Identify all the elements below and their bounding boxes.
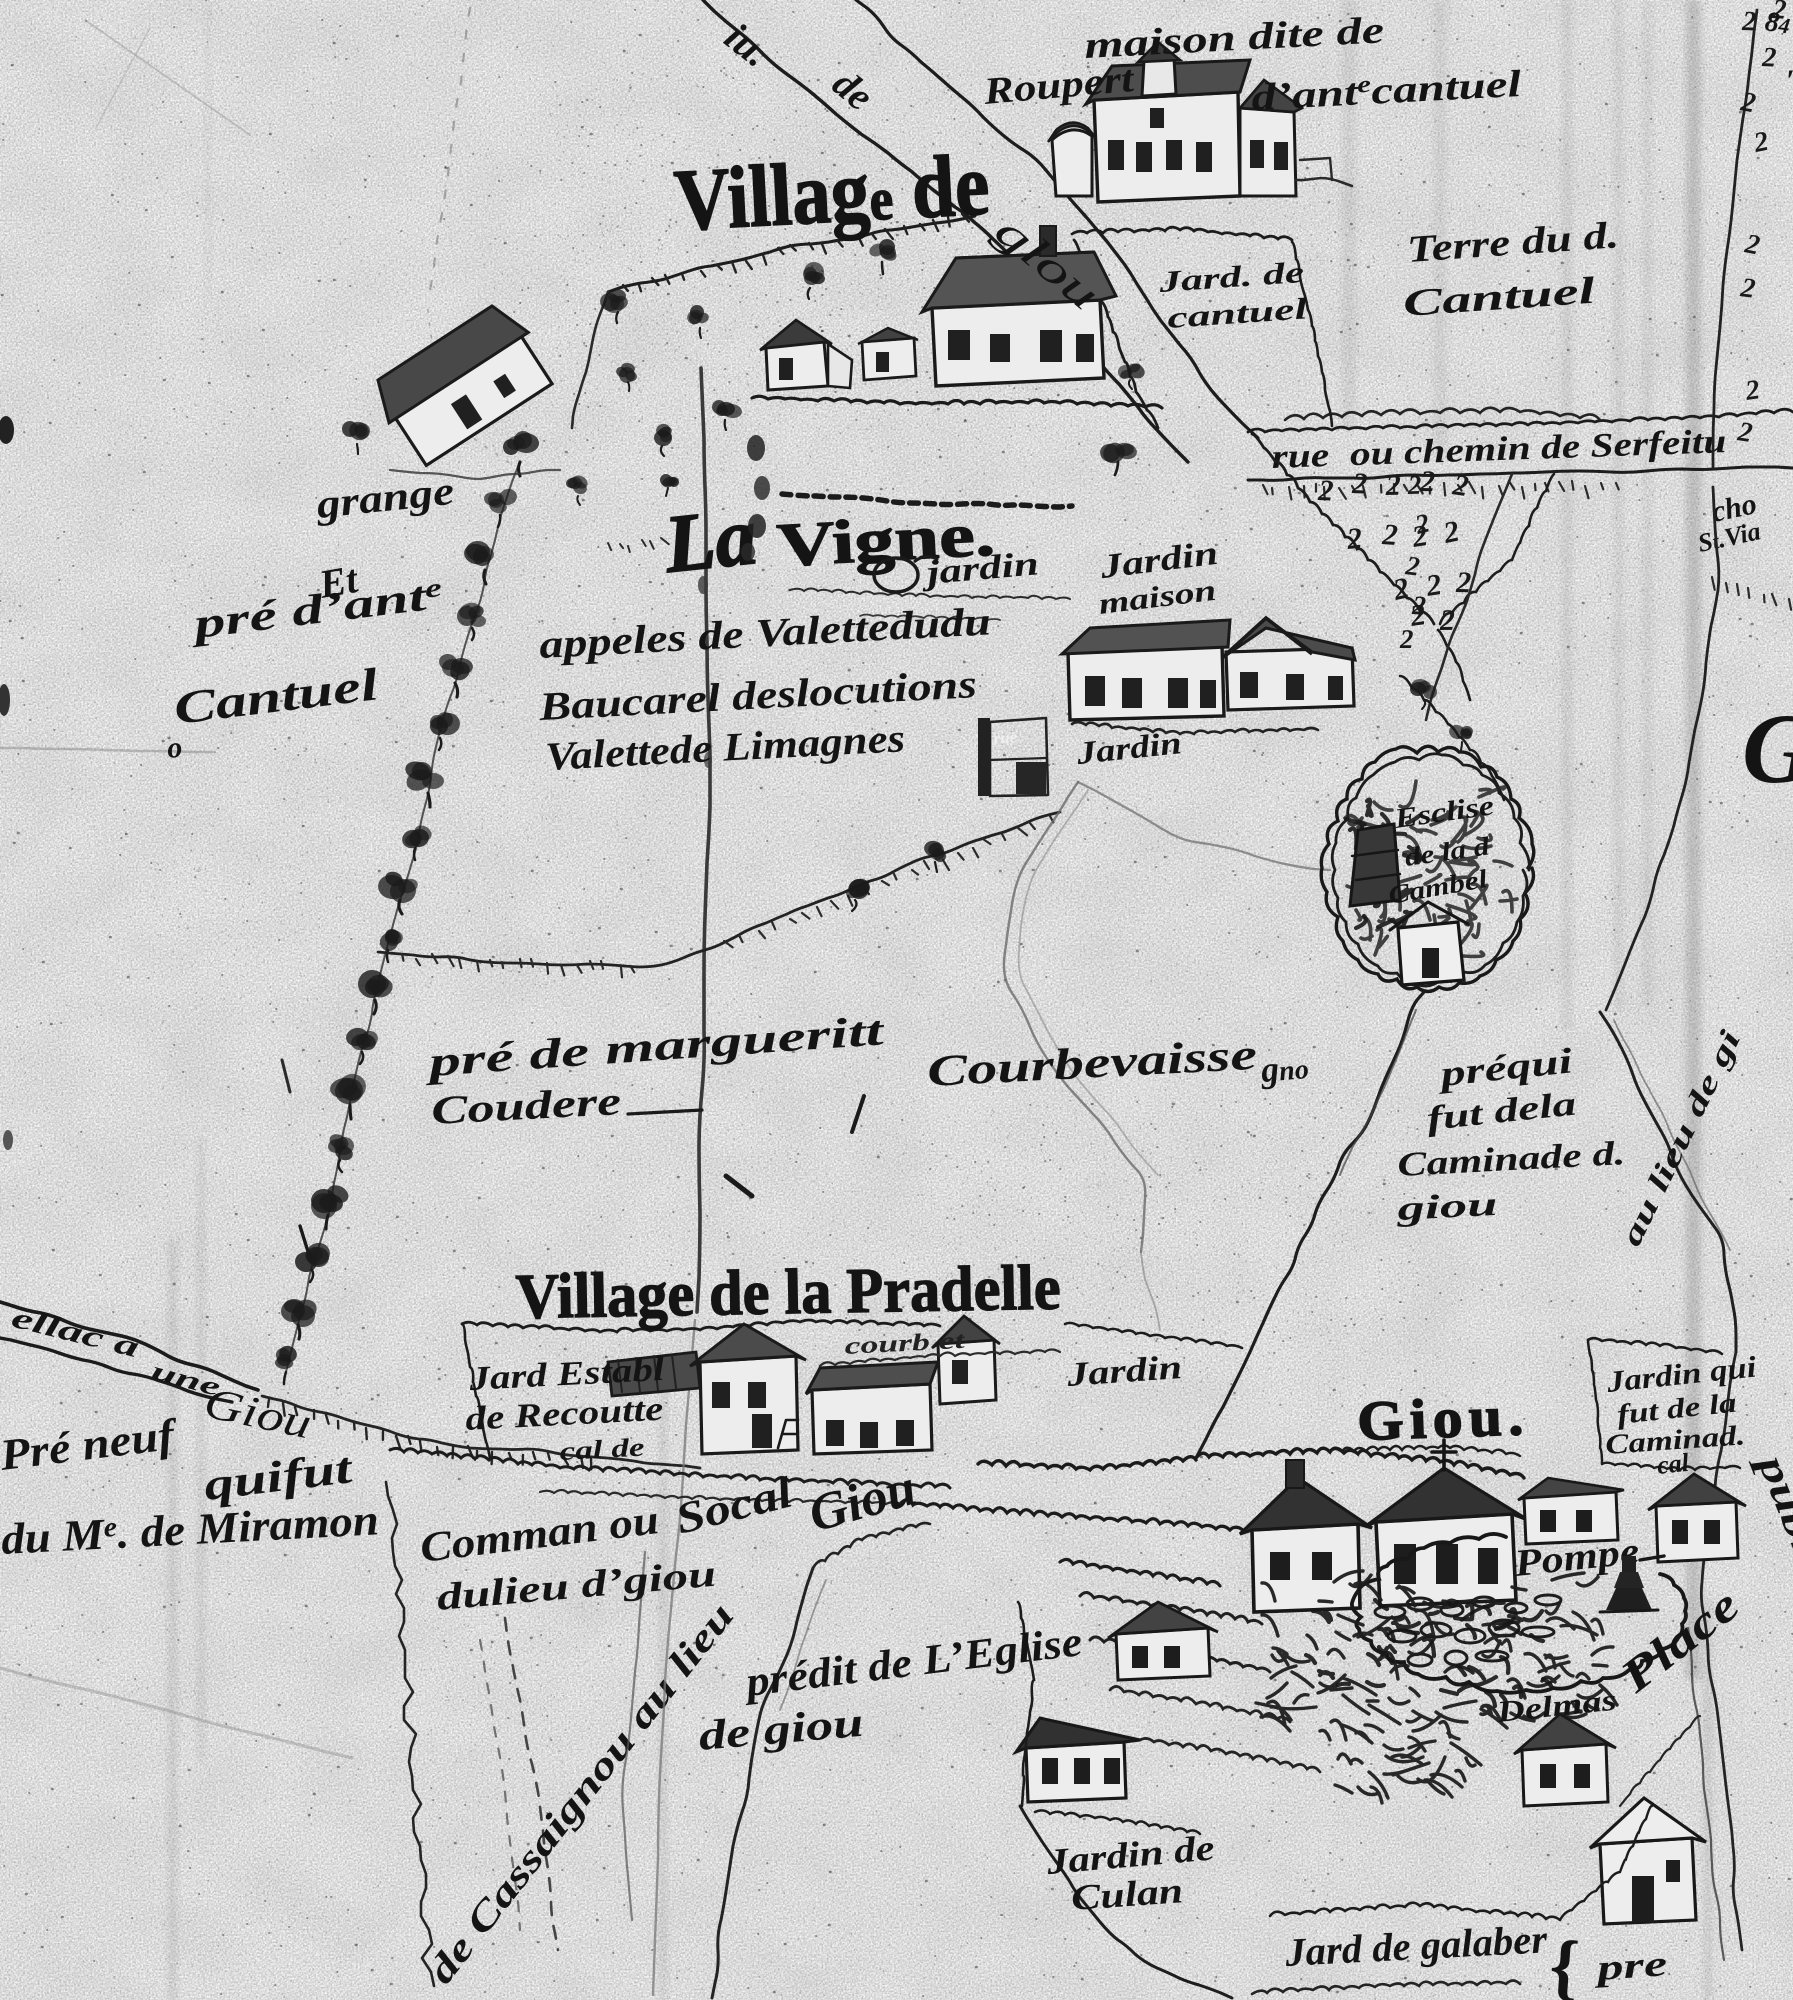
svg-text:2: 2	[1406, 470, 1421, 500]
svg-text:pre: pre	[1591, 1943, 1668, 1988]
svg-text:2: 2	[1741, 6, 1757, 37]
svg-text:2: 2	[1761, 42, 1777, 74]
svg-text:′: ′	[1786, 64, 1793, 97]
svg-text:2: 2	[1317, 474, 1334, 508]
svg-text:{: {	[1547, 1925, 1582, 2000]
svg-text:2: 2	[1345, 522, 1364, 556]
svg-text:2: 2	[1385, 469, 1402, 502]
svg-text:2: 2	[1351, 467, 1368, 501]
svg-text:Culan: Culan	[1070, 1870, 1185, 1918]
svg-text:2: 2	[1411, 590, 1427, 621]
svg-text:rue: rue	[993, 727, 1018, 748]
svg-text:giou: giou	[1395, 1186, 1498, 1228]
svg-text:cal: cal	[1656, 1448, 1691, 1480]
svg-text:cal de: cal de	[559, 1433, 645, 1466]
svg-text:Giou.: Giou.	[1356, 1385, 1530, 1453]
svg-text:2: 2	[1399, 624, 1414, 654]
svg-text:G: G	[1742, 693, 1793, 804]
svg-text:Village de: Village de	[672, 137, 992, 250]
svg-text:La: La	[659, 490, 760, 590]
svg-text:2: 2	[1381, 518, 1399, 552]
svg-text:o: o	[166, 731, 184, 765]
svg-text:Village de la Pradelle: Village de la Pradelle	[515, 1251, 1061, 1332]
